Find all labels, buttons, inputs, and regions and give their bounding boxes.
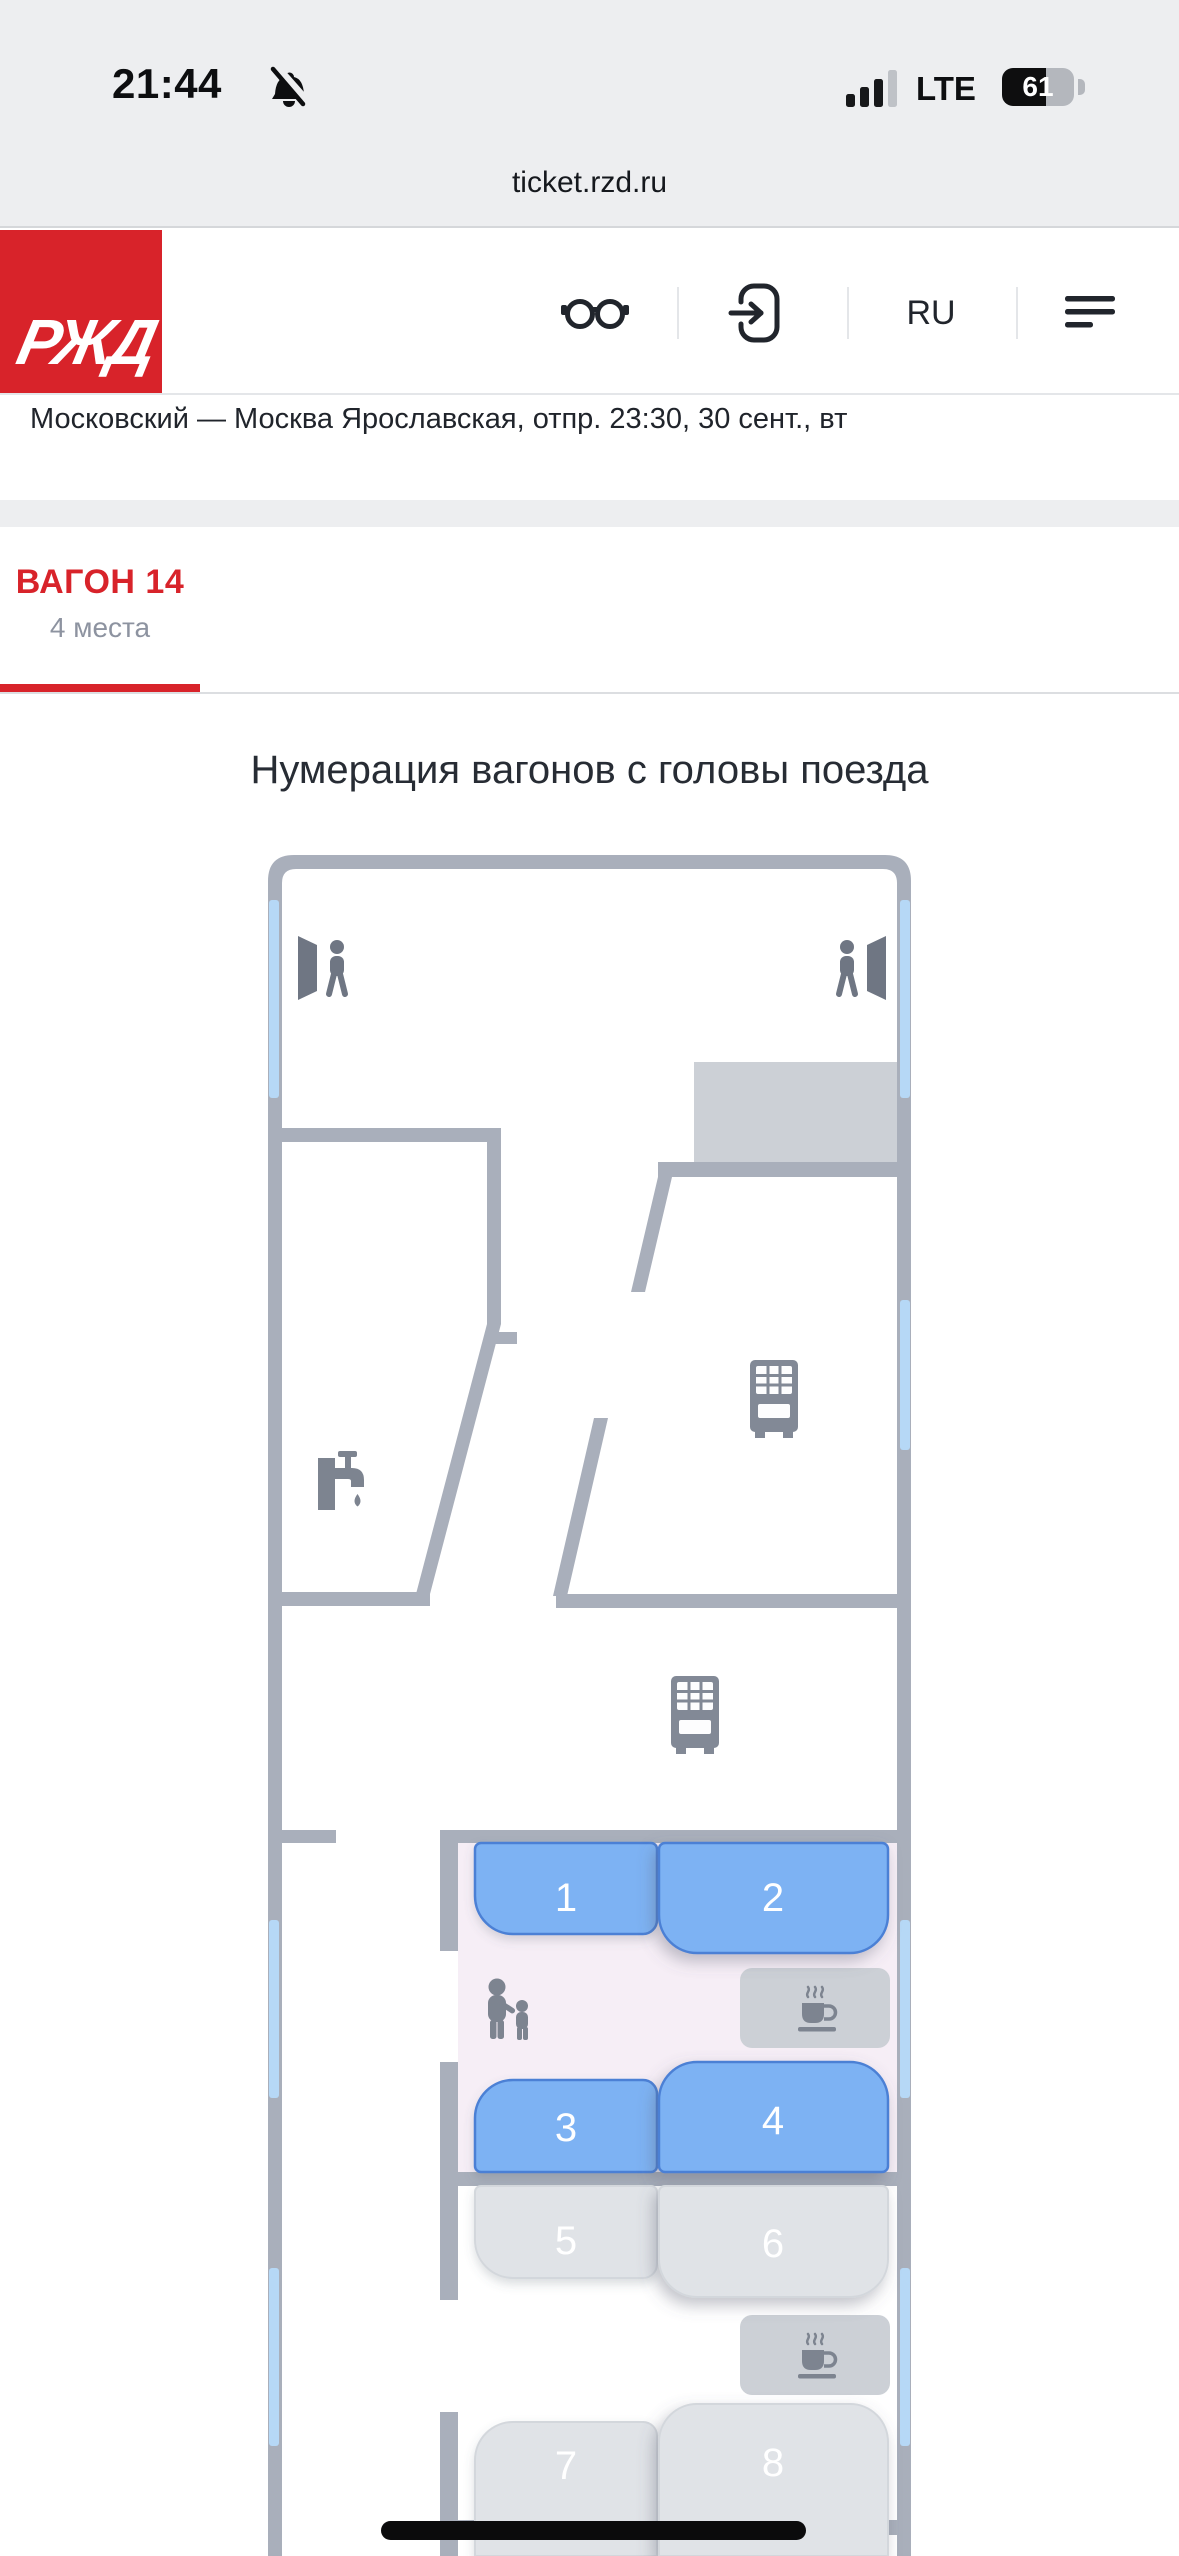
rzd-logo-text: РЖД (11, 306, 162, 378)
tea-table (740, 1968, 890, 2048)
signal-strength-icon (846, 68, 900, 108)
seat-4[interactable]: 4 (659, 2062, 888, 2172)
menu-button[interactable] (1056, 287, 1126, 339)
wagon-tabs-bar: ВАГОН 14 4 места (0, 527, 1179, 694)
seat-2[interactable]: 2 (659, 1843, 888, 1953)
active-tab-underline (0, 684, 200, 692)
car-plan: 1 2 3 4 5 6 7 8 (0, 840, 1179, 2556)
plan-caption: Нумерация вагонов с головы поезда (0, 748, 1179, 793)
vending-machine-icon (750, 1360, 798, 1438)
login-button[interactable] (724, 287, 794, 339)
seat-number: 3 (555, 2106, 577, 2150)
battery-cap (1078, 79, 1085, 95)
wagon-tab-free-seats: 4 места (0, 612, 200, 644)
glasses-icon (557, 290, 633, 336)
trip-summary-text: Московский — Москва Ярославская, отпр. 2… (30, 403, 847, 436)
seat-number: 2 (762, 1876, 784, 1920)
section-divider (0, 500, 1179, 527)
seat-number: 8 (762, 2441, 784, 2485)
tab-wagon-14[interactable]: ВАГОН 14 4 места (0, 527, 200, 692)
battery-percent: 61 (1022, 71, 1053, 103)
header-divider (1016, 287, 1018, 339)
trip-summary-bar: Московский — Москва Ярославская, отпр. 2… (0, 395, 1179, 500)
seat-5[interactable]: 5 (475, 2186, 657, 2278)
browser-url-bar[interactable]: ticket.rzd.ru (0, 148, 1179, 218)
vending-machine-icon (671, 1676, 719, 1754)
url-text: ticket.rzd.ru (512, 166, 667, 200)
clock: 21:44 (112, 60, 222, 108)
seat-number: 5 (555, 2219, 577, 2263)
seat-number: 1 (555, 1876, 577, 1920)
header-divider (677, 287, 679, 339)
tea-table (740, 2315, 890, 2395)
seat-1[interactable]: 1 (475, 1843, 657, 1934)
notifications-muted-icon (264, 64, 310, 110)
login-icon (727, 283, 791, 343)
battery-icon: 61 (1002, 68, 1074, 106)
entry-door-left-icon (298, 936, 345, 1000)
accessibility-version-button[interactable] (556, 287, 634, 339)
network-type-label: LTE (916, 70, 976, 108)
top-chrome: 21:44 LTE 61 ticket.rzd.ru (0, 0, 1179, 228)
header-divider (847, 287, 849, 339)
service-closet (694, 1062, 897, 1162)
entry-door-right-icon (839, 936, 886, 1000)
rzd-logo[interactable]: РЖД (0, 230, 162, 393)
seat-3[interactable]: 3 (475, 2080, 657, 2172)
language-switcher[interactable]: RU (896, 294, 966, 333)
seat-number: 4 (762, 2099, 784, 2143)
water-tap-icon (318, 1451, 364, 1510)
wagon-tab-title: ВАГОН 14 (0, 563, 200, 602)
seat-number: 7 (555, 2444, 577, 2488)
home-indicator[interactable] (381, 2521, 806, 2540)
seat-6[interactable]: 6 (659, 2186, 888, 2297)
seat-number: 6 (762, 2222, 784, 2266)
hamburger-icon (1065, 296, 1117, 330)
